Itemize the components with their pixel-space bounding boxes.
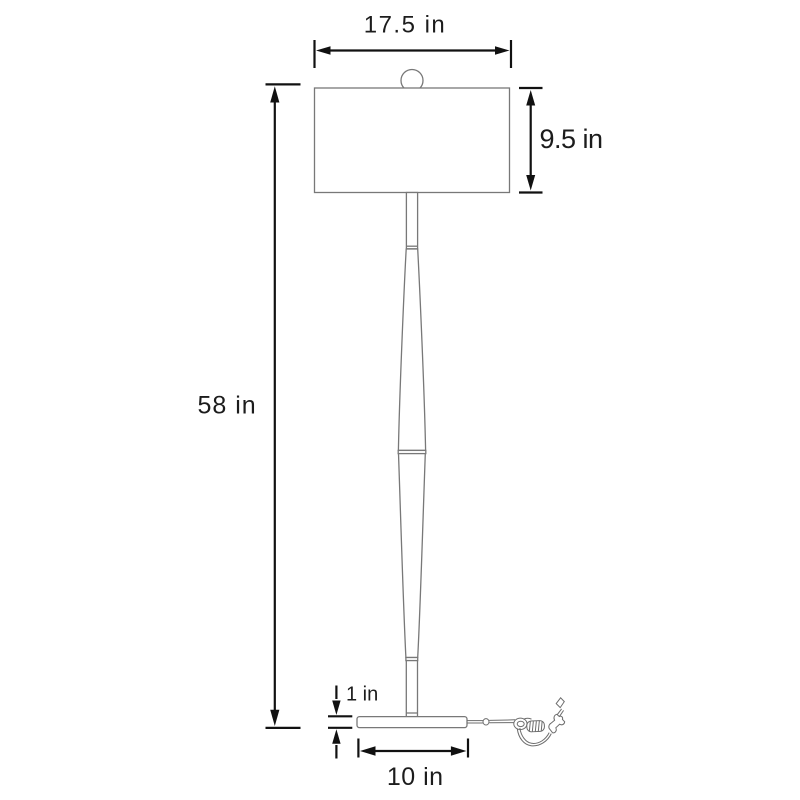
svg-text:58 in: 58 in	[198, 392, 257, 420]
svg-text:17.5 in: 17.5 in	[364, 12, 447, 39]
svg-text:9.5 in: 9.5 in	[540, 124, 603, 154]
svg-text:1 in: 1 in	[346, 684, 378, 706]
svg-text:10 in: 10 in	[387, 763, 444, 791]
